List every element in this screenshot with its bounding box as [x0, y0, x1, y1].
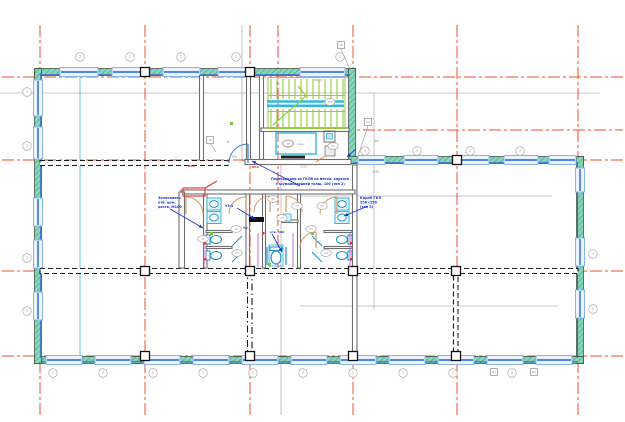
dimension-text: 4580: [372, 170, 379, 174]
annotation-blue-text: Перегородки из ГКЛВ на метал. каркасе: [271, 177, 350, 181]
interior-wall: [454, 274, 459, 357]
interior-wall: [248, 274, 253, 357]
window-tag-label: 2: [364, 149, 366, 153]
room-tag-label: 23: [235, 251, 239, 255]
window-tag-label: 2: [52, 371, 54, 375]
interior-wall: [200, 76, 204, 161]
interior-wall: [181, 190, 355, 194]
room-tag-label: 16: [271, 197, 275, 201]
windows-layer: [34, 68, 585, 365]
red-marker: [350, 258, 353, 261]
room-tag-label: 18: [280, 216, 284, 220]
annotation-blue-text: с шумоизоляцией толщ. 100 (тип 2): [276, 182, 345, 186]
section-marker-text: 1А: [374, 139, 379, 143]
room-tag-label: 24: [324, 251, 328, 255]
column: [141, 68, 150, 77]
room-tag-label: 22: [320, 204, 324, 208]
annotation-red-text: Ø50: [252, 164, 259, 169]
room-tag-label: 19: [234, 227, 238, 231]
annotation-blue-text: ТП: [243, 226, 248, 230]
stair-direction-line: [298, 86, 306, 96]
toilet-tank: [206, 251, 210, 260]
window-tag-label: 2: [235, 55, 237, 59]
column: [246, 352, 255, 361]
floor-plan-svg: 14маш.Зачеканитьотв. цем.раств. М100Пере…: [0, 0, 625, 422]
column: [141, 267, 150, 276]
window-tag-label: 2: [180, 55, 182, 59]
toilet-bowl: [211, 236, 222, 244]
room-tag-label: 17: [295, 204, 299, 208]
column: [141, 352, 150, 361]
column: [349, 267, 358, 276]
green-marker: [210, 232, 213, 235]
window-tag-label: 2: [26, 309, 28, 313]
annotation-blue-text: Зачеканить: [158, 196, 181, 200]
column: [452, 267, 461, 276]
column: [246, 68, 255, 77]
window-tag-label: 2: [452, 371, 454, 375]
dimension-text: 300×9: [313, 78, 323, 82]
sink-basin: [210, 201, 219, 208]
core-layer: 14маш.: [186, 78, 353, 268]
window-tag-label: 2: [26, 256, 28, 260]
detail-tag-label: 1В: [339, 43, 343, 47]
window-tag-label: 2: [352, 371, 354, 375]
window-tag-label: 2: [152, 371, 154, 375]
red-marker: [350, 242, 353, 245]
annotation-blue-text: Короб ГКЛ: [360, 196, 381, 200]
interior-wall: [206, 231, 232, 233]
floor-plan-viewport: 14маш.Зачеканитьотв. цем.раств. М100Пере…: [0, 0, 625, 422]
annotation-blue-text: раств. М100: [158, 205, 182, 209]
shaft-box-inner: [327, 134, 333, 140]
window-tag-label: 2: [26, 144, 28, 148]
room-tag-label: 21: [309, 227, 313, 231]
column: [349, 352, 358, 361]
stall-door: [312, 236, 322, 246]
window-tag-label: 2: [79, 55, 81, 59]
window-tag-label: 2: [402, 371, 404, 375]
exterior-walls-layer: [35, 69, 584, 364]
annotation-blue-text: 250×250: [360, 201, 378, 205]
window-tag-label: 2: [302, 371, 304, 375]
window-tag-label: 2: [252, 371, 254, 375]
window-tag-label: 2: [511, 371, 513, 375]
interior-wall: [206, 247, 232, 249]
machine-room-label: маш.: [297, 142, 304, 146]
window-tag-label: 2: [469, 149, 471, 153]
annotation-blue-text: У3-1: [225, 204, 233, 208]
red-marker: [262, 232, 265, 235]
window-tag-label: 2: [592, 307, 594, 311]
interior-wall: [245, 160, 351, 165]
dimension-text: 1525: [300, 165, 307, 169]
toilet-bowl: [337, 236, 348, 244]
interior-wall: [260, 76, 264, 161]
annotation-red-text: Ø50: [188, 163, 195, 168]
window-tag-label: 2: [26, 90, 28, 94]
toilet-bowl: [211, 252, 222, 260]
exterior-wall: [349, 69, 356, 164]
interior-wall: [40, 269, 578, 274]
room-tag-label: 15: [331, 144, 335, 148]
window-tag-label: 2: [102, 371, 104, 375]
detail-tag-label: 1Б: [208, 138, 212, 142]
stall-door: [232, 236, 242, 246]
accessible-toilet-bowl: [271, 251, 281, 264]
machine-room-bar: [281, 156, 305, 159]
door-swing-arc: [186, 197, 203, 214]
toilet-bowl: [337, 252, 348, 260]
section-marker-text: А: [227, 140, 230, 144]
window-tag-label: 2: [519, 149, 521, 153]
window-tag-label: 2: [339, 55, 341, 59]
room-tag-label: 14: [286, 142, 290, 146]
dimension-text: 800: [232, 155, 238, 159]
window-tag-label: 2: [202, 371, 204, 375]
detail-tag-label: Д2: [532, 370, 536, 374]
tag-leader: [210, 143, 216, 152]
sink-basin: [210, 214, 219, 221]
window-tag-label: 2: [129, 55, 131, 59]
annotation-blue-text: отв. 100: [270, 230, 284, 234]
interior-wall: [324, 231, 352, 233]
room-tag-label: 20: [201, 237, 205, 241]
green-marker: [230, 122, 233, 125]
interior-wall: [179, 192, 185, 268]
detail-tag-label: 1А: [366, 120, 370, 124]
annotation-blue-text: отв. цем.: [158, 201, 176, 205]
column: [246, 267, 255, 276]
red-marker: [204, 258, 207, 261]
window-tag-label: 2: [592, 252, 594, 256]
leader-arrowhead: [199, 225, 203, 228]
interior-wall: [324, 247, 352, 249]
red-revision-flag: [205, 181, 217, 188]
sink-basin: [338, 201, 347, 208]
detail-tag-label: Д1: [492, 370, 496, 374]
interior-wall: [263, 194, 266, 268]
window-tag-label: 2: [416, 149, 418, 153]
column: [452, 352, 461, 361]
interior-wall: [40, 161, 228, 166]
green-marker: [268, 263, 271, 266]
tags-layer: 22222222222222222222222221Б1В1АД1Д214ЛК1…: [23, 42, 598, 378]
column: [453, 156, 462, 165]
machine-room-box: [276, 133, 316, 154]
